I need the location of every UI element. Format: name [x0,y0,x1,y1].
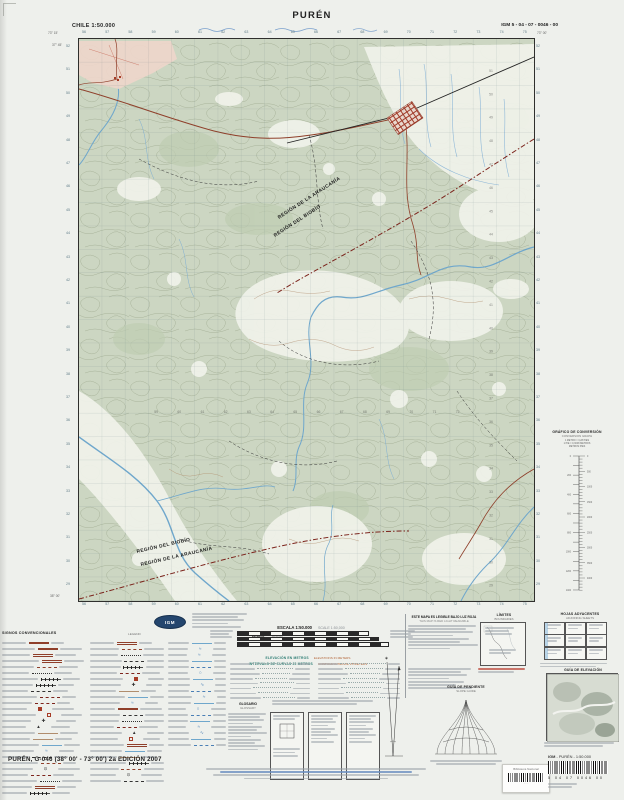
glossary-en: GLOSSARY [226,706,270,710]
slope-guide: GUÍA DE PENDIENTE SLOPE GUIDE [428,685,504,766]
adjoining-sheet-cell [586,634,607,647]
hojas-caption [540,663,610,668]
library-sticker: Biblioteca Nacional ······ [502,764,550,793]
library-sticker-number: ······ [503,782,549,785]
grid-number: 29 [66,582,70,586]
grid-number: 39 [536,348,540,352]
igm-code-rest: - PURÉN - 1:50.000 [555,754,591,759]
grid-number: 32 [66,512,70,516]
grid-number: 31 [66,535,70,539]
grid-number: 43 [66,255,70,259]
svg-text:2000: 2000 [587,517,593,519]
grid-number: 47 [536,161,540,165]
legend-symbol-glyph-icon: ≈ [194,695,214,700]
legend-symbol-dash-black-icon [124,661,144,662]
legend-symbol-boundary-icon [31,775,51,776]
legend-symbol-rail-icon [41,678,61,681]
inmap-grid-number: 30 [489,560,493,564]
legend-symbol-stream-icon [191,739,211,740]
map-sheet: CHILE 1:50.000 PURÉN IGM 5 - 04 - 07 - 0… [0,0,624,800]
adjoining-sheets-grid [544,622,624,660]
legend-symbol-glyph-icon: ∿ [192,731,212,736]
legend-symbol-glyph-icon: ∿ [192,683,212,688]
grid-number: 34 [66,465,70,469]
svg-text:600: 600 [567,513,572,515]
grid-number: 60 [175,30,179,34]
grid-number: 52 [66,44,70,48]
legend-symbol-building-icon [38,707,42,711]
grid-number: 44 [536,231,540,235]
svg-text:1400: 1400 [566,590,572,592]
grid-number: 48 [66,138,70,142]
legend-symbol-canal-icon [191,667,211,668]
inmap-grid-number: 37 [489,397,493,401]
legend-symbol-stream-icon [192,661,212,662]
grid-number: 43 [536,255,540,259]
slope-guide-title-en: SLOPE GUIDE [428,689,504,693]
legend-symbol-glyph-icon: ≈ [37,749,57,754]
limites-map [480,622,526,666]
grid-number: 42 [536,278,540,282]
adjoining-sheet-cell [565,634,586,647]
legend-symbol-dash-black-icon [124,781,144,782]
corner-longitude-tl: 73° 15' [48,31,58,35]
legend-symbol-canal-icon [194,745,214,746]
grid-number: 75 [523,30,527,34]
grid-number: 58 [128,30,132,34]
legend-symbol-trail-icon [32,673,52,674]
legend-symbol-canal-icon [191,691,211,692]
grid-number: 37 [66,395,70,399]
inmap-grid-number: 45 [489,209,493,213]
legend-symbol-canal-icon [191,715,211,716]
igm-logo: IGM [154,615,186,629]
inmap-grid-number: 70 [409,410,413,414]
legend-symbol-road-2-icon [117,642,137,645]
legend-symbol-stream-icon [190,721,210,722]
inmap-grid-number: 51 [489,69,493,73]
glossary-list [228,713,268,752]
legend-symbol-road-dash-icon [37,667,57,668]
legend-symbol-stream-icon [125,751,145,752]
svg-text:0: 0 [587,456,589,458]
inmap-grid-number: 69 [386,410,390,414]
legend-symbol-contour-icon [119,691,139,692]
grid-number: 51 [66,67,70,71]
inmap-grid-number: 48 [489,139,493,143]
scale-bar-meters [237,631,369,636]
sheet-code: IGM 5 - 04 - 07 - 0046 - 00 [430,23,590,28]
elevation-guide-caption [544,742,618,747]
legend-symbol-road-dash-icon [121,769,141,770]
legend-symbol-glyph-icon: ≈ [190,647,210,652]
legend-row [2,790,86,796]
legend-symbol-dash-black-icon [123,715,143,716]
svg-text:1200: 1200 [566,571,572,573]
inmap-grid-number: 64 [270,410,274,414]
inmap-grid-number: 36 [489,420,493,424]
legend-symbol-road-paved-icon [29,642,49,644]
legend-symbol-stream-icon [194,703,214,704]
legend-symbol-stream-icon [42,745,62,746]
grid-number: 33 [66,489,70,493]
grid-number: 50 [66,91,70,95]
corner-latitude-tl: 37° 45' [52,43,62,47]
corner-latitude-bl: 38° 00' [50,594,60,598]
conversion-row-3: METROS PIES [534,445,620,448]
inmap-grid-number: 68 [363,410,367,414]
map-neatline: REGIÓN DE LA ARAUCANÍA REGIÓN DEL BIOBÍO… [78,38,535,602]
svg-text:1500: 1500 [587,502,593,504]
grid-number: 36 [536,418,540,422]
legend-symbol-trail-icon [40,781,60,782]
svg-text:200: 200 [567,475,572,477]
scale-bar-left-labels [210,630,234,640]
legend-symbol-glyph-icon: ✚ [124,683,144,688]
notes-spanish [230,660,310,699]
conversion-ruler: 0200400600800100012001400050010001500200… [549,450,605,596]
inmap-grid-number: 41 [489,303,493,307]
inmap-grid-number: 62 [224,410,228,414]
svg-text:400: 400 [567,494,572,496]
grid-number: 50 [536,91,540,95]
inmap-grid-number: 39 [489,350,493,354]
legend-symbol-road-2-icon [35,786,55,789]
legend-symbol-building-icon [134,677,138,681]
igm-logo-text: IGM [165,620,175,625]
legend-symbol-glyph-icon: ⊙ [119,773,139,778]
svg-text:✶: ✶ [384,656,388,662]
grid-number: 74 [500,30,504,34]
svg-text:800: 800 [567,533,572,535]
hojas-title-en: ADJOINING SHEETS [536,616,624,620]
legend-symbol-contour-icon [38,733,58,734]
grid-number: 41 [66,301,70,305]
adjoining-sheet-cell [544,634,565,647]
magnetic-declination-diagram: ✶ [380,650,412,764]
legend-symbol-glyph-icon: ≈ [189,725,209,730]
corner-longitude-tr: 73° 00' [537,31,547,35]
legend-symbol-road-2-icon [42,660,62,663]
copyright-paragraph [196,768,436,781]
inmap-grid-number: 71 [433,410,437,414]
legend-symbol-contour-icon [33,739,53,740]
grid-number: 51 [536,67,540,71]
legend-column-1: ✚▲≈⊙ [2,640,86,796]
grid-number: 40 [66,325,70,329]
legend-symbol-rail-icon [36,684,56,687]
inmap-grid-number: 32 [489,514,493,518]
inmap-grid-number: 72 [456,410,460,414]
inmap-grid-number: 43 [489,256,493,260]
grid-number: 70 [407,30,411,34]
legend-column-3: ≈≈○∿≈○≈∿ [168,640,226,748]
grid-number: 52 [536,44,540,48]
inmap-grid-number: 40 [489,326,493,330]
grid-number: 72 [453,30,457,34]
grid-number: 56 [82,30,86,34]
grid-number: 71 [430,30,434,34]
slope-fan-diagram [431,694,501,760]
adjoining-sheet-cell [586,622,607,635]
country-scale-label: CHILE 1:50.000 [72,23,115,29]
legend-symbol-dash-black-icon [31,691,51,692]
legend-symbol-road-paved-icon [118,708,138,710]
inmap-grid-number: 29 [489,584,493,588]
adjoining-sheet-cell [565,622,586,635]
topographic-map: REGIÓN DE LA ARAUCANÍA REGIÓN DEL BIOBÍO… [79,39,534,601]
igm-barcode [548,761,608,774]
svg-text:1000: 1000 [566,552,572,554]
grid-number: 49 [66,114,70,118]
notes-row [230,694,310,699]
legend-symbol-stream-icon [192,643,212,644]
igm-barcode-digits: 5 04 07 0046 00 [548,776,604,780]
grid-number: 45 [536,208,540,212]
grid-number: 73 [476,30,480,34]
inmap-grid-number: 33 [489,490,493,494]
svg-text:0: 0 [570,456,572,458]
inmap-grid-number: 44 [489,233,493,237]
slope-guide-caption [428,760,504,765]
conversion-graph: GRÁFICO DE CONVERSIÓN CONVERSION GRAPH 1… [534,430,620,596]
grid-number: 57 [105,30,109,34]
inmap-grid-number: 63 [247,410,251,414]
inmap-grid-number: 66 [317,410,321,414]
inmap-grid-number: 61 [201,410,205,414]
grid-number: 48 [536,138,540,142]
inmap-grid-number: 35 [489,443,493,447]
grid-number: 36 [66,418,70,422]
legend-symbol-trail-icon [121,655,141,656]
library-sticker-label: Biblioteca Nacional [503,767,549,771]
inmap-grid-number: 31 [489,537,493,541]
legend-symbol-stream-icon [128,697,148,698]
glossary-heading: GLOSARIO GLOSSARY [226,702,270,710]
utm-grid [79,39,534,601]
inmap-grid-number: 65 [293,410,297,414]
legend-row [168,742,226,748]
grid-number: 46 [536,184,540,188]
library-sticker-barcode [508,773,544,782]
grid-number: 59 [152,30,156,34]
grid-number: 47 [66,161,70,165]
grid-number: 38 [536,372,540,376]
grid-number: 38 [66,372,70,376]
legend-row [90,778,164,784]
inmap-grid-number: 46 [489,186,493,190]
sheet-title-footer: PURÉN, G-046 (38° 00' - 73° 00') 2a EDIC… [8,756,162,763]
adjoining-sheets: HOJAS ADYACENTES ADJOINING SHEETS [536,612,624,669]
grid-number: 40 [536,325,540,329]
grid-number: 46 [66,184,70,188]
legend-symbol-boundary-icon [120,673,140,674]
scale-bar-miles [237,637,379,642]
legend-symbol-glyph-icon: ≈ [123,701,143,706]
svg-text:3500: 3500 [587,563,593,565]
inmap-grid-number: 38 [489,373,493,377]
grid-number: 30 [66,559,70,563]
inmap-grid-number: 67 [340,410,344,414]
adjoining-sheet-cell [544,622,565,635]
legend-symbol-road-dash-icon [122,649,142,650]
legend-symbol-boundary-icon [40,697,60,698]
red-light-notes [408,625,480,649]
limites-caption [478,668,530,673]
legend-title-en: LEGEND [128,632,141,636]
legend-symbol-boundary-icon [35,703,55,704]
legend-symbol-road-paved-icon [38,648,58,650]
legend-symbol-rail-icon [123,666,143,669]
map-title: PURÉN [0,10,624,21]
igm-code-label: IGM - PURÉN - 1:50.000 [548,754,591,759]
red-light-block: ESTE MAPA ES LEGIBLE BAJO LUZ ROJA THIS … [408,615,480,651]
grid-number: 35 [66,442,70,446]
limites-title-en: BOUNDARIES [478,617,530,621]
inmap-grid-number: 47 [489,163,493,167]
legend-symbol-stream-icon [193,679,213,680]
elevation-guide-map [546,673,618,741]
boundaries-box: LÍMITES BOUNDARIES [478,613,530,674]
conversion-title-en: CONVERSION GRAPH [534,434,620,438]
grid-number: 44 [66,231,70,235]
legend-symbol-building-o-icon [47,713,51,717]
elevation-guide-title: GUÍA DE ELEVACIÓN [544,668,622,672]
svg-text:4000: 4000 [587,578,593,580]
grid-number: 37 [536,395,540,399]
grid-square-diagram [273,721,301,743]
legend-symbol-trail-icon [122,721,142,722]
legend-symbol-road-2-icon [33,654,53,657]
inmap-grid-number: 42 [489,280,493,284]
legend-title: SIGNOS CONVENCIONALES [2,631,56,635]
grid-number: 42 [66,278,70,282]
adjoining-sheet-cell [544,647,565,660]
inmap-grid-number: 49 [489,116,493,120]
adjoining-sheet-cell [565,647,586,660]
legend-symbol-rail-icon [30,792,50,795]
inmap-grid-number: 59 [154,410,158,414]
grid-number: 49 [536,114,540,118]
svg-text:1000: 1000 [587,487,593,489]
inmap-grid-number: 60 [177,410,181,414]
grid-number: 45 [66,208,70,212]
svg-text:2500: 2500 [587,532,593,534]
elevation-guide: GUÍA DE ELEVACIÓN [544,668,622,748]
svg-text:3000: 3000 [587,548,593,550]
legend-symbol-building-o-icon [129,737,133,741]
legend-symbol-glyph-icon: ○ [190,671,210,676]
blue-annotation-marks [195,25,385,34]
legend-symbol-glyph-icon: ≈ [189,653,209,658]
legend-symbol-glyph-icon: ▲ [124,731,144,736]
legend-symbol-road-2-icon [127,744,147,747]
svg-text:500: 500 [587,471,592,473]
legend-symbol-boundary-icon [117,727,137,728]
grid-number: 39 [66,348,70,352]
legend-symbol-glyph-icon: ✚ [34,719,54,724]
legend-symbol-glyph-icon: ▲ [29,725,49,730]
legend-symbol-glyph-icon: ○ [188,707,208,712]
inmap-grid-number: 34 [489,467,493,471]
legend-symbol-glyph-icon: ⊙ [36,767,56,772]
red-light-en: THIS MAP IS RED LIGHT READABLE [408,619,480,623]
igm-barcode-notes [548,783,578,789]
inmap-grid-number: 50 [489,92,493,96]
grid-number: 41 [536,301,540,305]
boxes-caption [272,700,378,706]
adjoining-sheet-cell [586,647,607,660]
